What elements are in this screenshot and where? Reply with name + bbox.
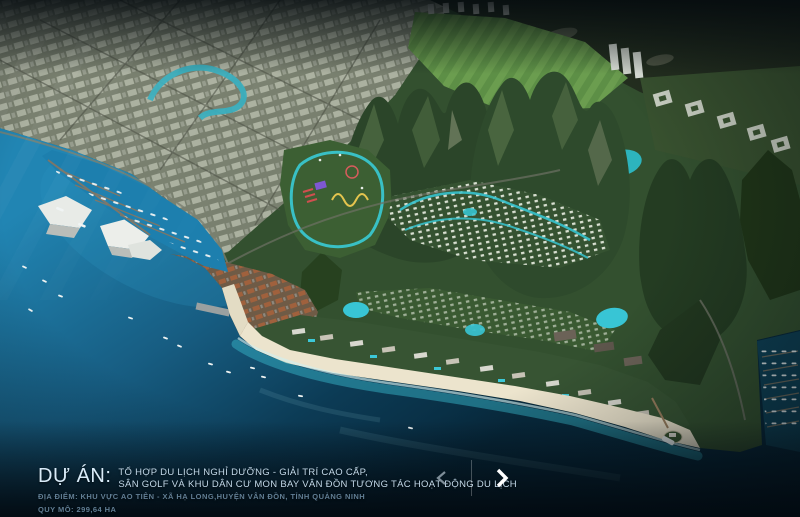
- nav-divider: [471, 460, 472, 496]
- moored-yachts: [761, 344, 799, 432]
- chevron-left-icon: [434, 469, 450, 487]
- lagoon-pool: [343, 302, 369, 318]
- carousel-nav: [422, 458, 522, 498]
- prev-slide-button[interactable]: [422, 458, 462, 498]
- next-slide-button[interactable]: [482, 458, 522, 498]
- masterplan-rendering: [0, 0, 800, 517]
- project-label: DỰ ÁN:: [38, 464, 111, 488]
- chevron-right-icon: [493, 468, 511, 488]
- carousel-slide: DỰ ÁN: TỔ HỢP DU LỊCH NGHỈ DƯỠNG - GIẢI …: [0, 0, 800, 517]
- project-area: QUY MÔ: 299,64 HA: [38, 505, 517, 514]
